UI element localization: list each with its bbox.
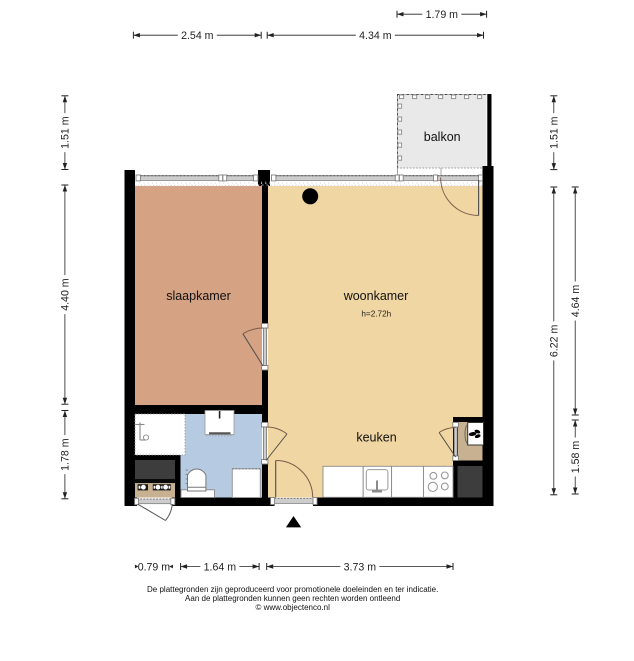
svg-text:0.79 m: 0.79 m — [138, 561, 171, 573]
svg-text:4.34 m: 4.34 m — [359, 30, 392, 42]
svg-text:6.22 m: 6.22 m — [549, 325, 561, 358]
svg-text:1.78 m: 1.78 m — [60, 438, 72, 471]
svg-text:4.40 m: 4.40 m — [60, 278, 72, 311]
svg-text:1.79 m: 1.79 m — [426, 9, 459, 21]
svg-text:slaapkamer: slaapkamer — [166, 289, 231, 303]
svg-text:De plattegronden zijn geproduc: De plattegronden zijn geproduceerd voor … — [147, 585, 438, 594]
svg-text:1.51 m: 1.51 m — [60, 116, 72, 149]
svg-text:balkon: balkon — [424, 130, 461, 144]
svg-text:woonkamer: woonkamer — [343, 289, 409, 303]
svg-text:4.64 m: 4.64 m — [570, 285, 582, 318]
svg-text:1.58 m: 1.58 m — [570, 441, 582, 474]
svg-text:keuken: keuken — [356, 430, 396, 444]
svg-text:3.73 m: 3.73 m — [344, 561, 377, 573]
svg-text:h=2.72h: h=2.72h — [361, 309, 391, 318]
svg-text:Aan de plattegronden kunnen ge: Aan de plattegronden kunnen geen rechten… — [185, 594, 400, 603]
svg-text:1.51 m: 1.51 m — [549, 116, 561, 149]
svg-text:2.54 m: 2.54 m — [181, 30, 214, 42]
svg-text:© www.objectenco.nl: © www.objectenco.nl — [256, 603, 331, 612]
svg-text:1.64 m: 1.64 m — [204, 561, 237, 573]
